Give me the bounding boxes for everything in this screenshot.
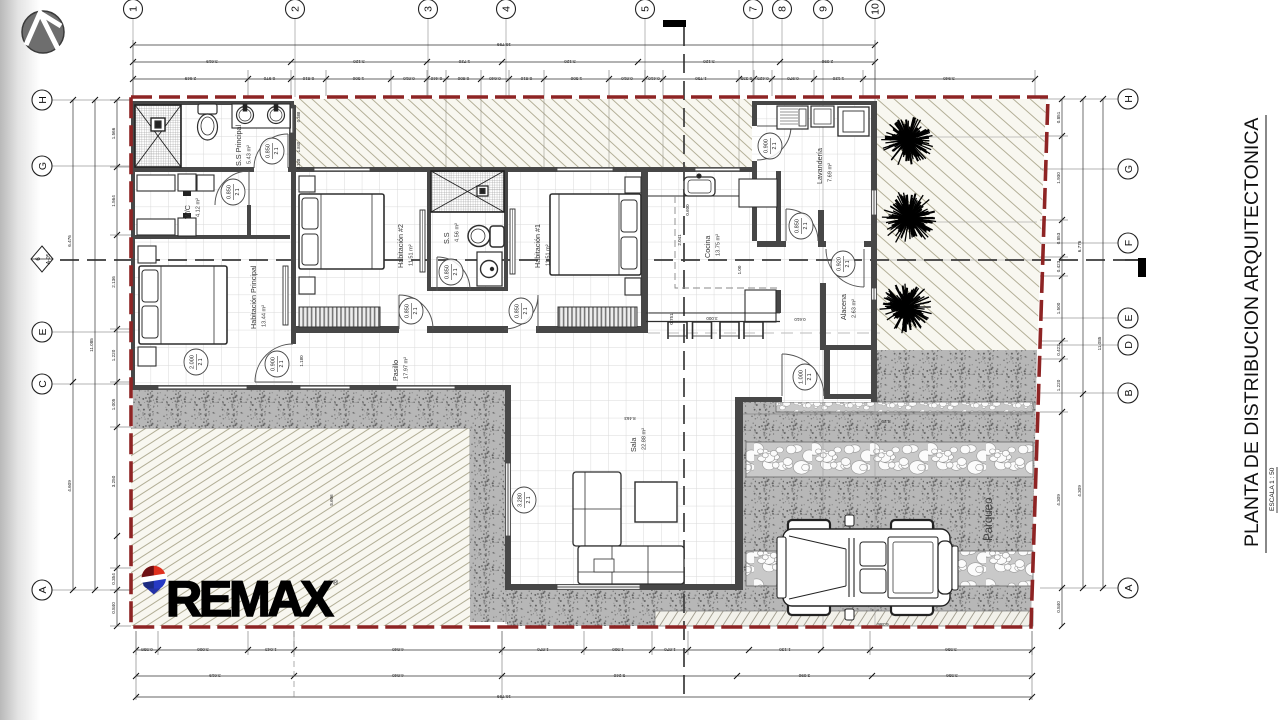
svg-text:2: 2 bbox=[290, 6, 302, 12]
svg-text:0.850: 0.850 bbox=[445, 265, 451, 279]
svg-text:2.136: 2.136 bbox=[111, 276, 116, 288]
svg-text:7: 7 bbox=[748, 6, 760, 12]
svg-text:3.000: 3.000 bbox=[197, 647, 209, 652]
svg-text:0.840: 0.840 bbox=[111, 602, 116, 614]
svg-text:0.853: 0.853 bbox=[1056, 232, 1061, 244]
svg-text:0.970: 0.970 bbox=[263, 76, 275, 81]
svg-text:1.500: 1.500 bbox=[352, 76, 364, 81]
svg-text:22.88 m²: 22.88 m² bbox=[642, 428, 648, 450]
svg-text:2.1: 2.1 bbox=[807, 373, 813, 380]
svg-text:0.751: 0.751 bbox=[669, 313, 674, 325]
svg-text:0.920: 0.920 bbox=[837, 257, 843, 271]
svg-text:0.851: 0.851 bbox=[1056, 111, 1061, 123]
svg-text:1: 1 bbox=[128, 6, 140, 12]
svg-text:1.870: 1.870 bbox=[664, 647, 676, 652]
svg-text:Habitación #2: Habitación #2 bbox=[396, 224, 405, 268]
svg-text:9: 9 bbox=[818, 6, 830, 12]
svg-text:13.44 m²: 13.44 m² bbox=[262, 305, 268, 327]
svg-text:0.423: 0.423 bbox=[1056, 344, 1061, 356]
svg-text:0.640: 0.640 bbox=[489, 76, 501, 81]
svg-text:3.280: 3.280 bbox=[518, 493, 524, 507]
svg-text:2.1: 2.1 bbox=[772, 142, 778, 149]
svg-text:1.005: 1.005 bbox=[111, 398, 116, 410]
svg-text:0.810: 0.810 bbox=[520, 76, 532, 81]
svg-text:4.309: 4.309 bbox=[1056, 494, 1061, 506]
svg-text:13.75 m²: 13.75 m² bbox=[716, 234, 722, 256]
svg-text:0.850: 0.850 bbox=[227, 185, 233, 199]
svg-text:1.840: 1.840 bbox=[296, 141, 301, 152]
svg-text:11.085: 11.085 bbox=[89, 338, 94, 352]
svg-text:0.410: 0.410 bbox=[648, 76, 660, 81]
svg-text:S.S: S.S bbox=[442, 232, 451, 244]
svg-text:17.97 m²: 17.97 m² bbox=[404, 357, 410, 379]
svg-text:5.240: 5.240 bbox=[613, 673, 625, 678]
svg-text:0.335: 0.335 bbox=[740, 76, 752, 81]
svg-text:10: 10 bbox=[870, 3, 882, 15]
svg-text:3.000: 3.000 bbox=[706, 316, 718, 321]
svg-text:1.180: 1.180 bbox=[299, 355, 304, 367]
svg-text:1.720: 1.720 bbox=[458, 59, 470, 64]
svg-text:3.619: 3.619 bbox=[206, 59, 218, 64]
svg-text:0.810: 0.810 bbox=[302, 76, 314, 81]
svg-text:1.566: 1.566 bbox=[111, 127, 116, 139]
svg-text:4.309: 4.309 bbox=[1077, 485, 1082, 497]
svg-text:0.840: 0.840 bbox=[1056, 601, 1061, 613]
svg-text:1.500: 1.500 bbox=[1056, 302, 1061, 314]
svg-text:C: C bbox=[37, 380, 49, 388]
svg-text:A: A bbox=[37, 586, 49, 593]
svg-text:0.610: 0.610 bbox=[794, 317, 806, 322]
svg-text:1.870: 1.870 bbox=[537, 647, 549, 652]
svg-text:1.500: 1.500 bbox=[612, 647, 624, 652]
svg-text:1.220: 1.220 bbox=[1056, 379, 1061, 391]
svg-text:1.000: 1.000 bbox=[799, 370, 805, 384]
svg-text:1.750: 1.750 bbox=[695, 76, 707, 81]
svg-text:2.1: 2.1 bbox=[235, 188, 241, 195]
svg-text:3.556: 3.556 bbox=[946, 673, 958, 678]
svg-text:2.1: 2.1 bbox=[279, 360, 285, 367]
svg-text:G: G bbox=[1123, 165, 1135, 173]
svg-text:Alacena: Alacena bbox=[839, 294, 848, 320]
svg-text:0.600: 0.600 bbox=[685, 204, 690, 216]
svg-text:3.250: 3.250 bbox=[111, 475, 116, 487]
svg-text:2.090: 2.090 bbox=[821, 59, 833, 64]
svg-text:11.51 m²: 11.51 m² bbox=[409, 244, 415, 266]
svg-text:3.940: 3.940 bbox=[943, 76, 955, 81]
svg-text:2.000: 2.000 bbox=[190, 355, 196, 369]
svg-text:Sala: Sala bbox=[629, 438, 638, 452]
svg-text:0.900: 0.900 bbox=[271, 357, 277, 371]
svg-text:Cocina: Cocina bbox=[703, 236, 712, 258]
svg-text:0.810: 0.810 bbox=[621, 76, 633, 81]
svg-text:REMAX: REMAX bbox=[166, 571, 333, 627]
svg-text:2.041: 2.041 bbox=[677, 234, 682, 246]
svg-text:G: G bbox=[37, 162, 49, 170]
svg-text:6.776: 6.776 bbox=[1077, 240, 1082, 252]
svg-text:8: 8 bbox=[777, 6, 789, 12]
svg-text:2.1: 2.1 bbox=[453, 268, 459, 275]
svg-text:1.220: 1.220 bbox=[111, 349, 116, 361]
svg-text:Habitación #1: Habitación #1 bbox=[533, 224, 542, 268]
svg-text:3.619: 3.619 bbox=[209, 673, 221, 678]
svg-text:4.56 m²: 4.56 m² bbox=[455, 223, 461, 242]
svg-text:1.930: 1.930 bbox=[1056, 172, 1061, 184]
svg-text:0.440: 0.440 bbox=[430, 76, 442, 81]
svg-text:16.799: 16.799 bbox=[497, 694, 511, 699]
svg-text:3.120: 3.120 bbox=[564, 59, 576, 64]
svg-text:B: B bbox=[1123, 389, 1135, 396]
svg-text:H: H bbox=[1123, 95, 1135, 103]
svg-text:0.388: 0.388 bbox=[296, 111, 301, 122]
svg-text:W/C: W/C bbox=[183, 205, 192, 219]
svg-text:E: E bbox=[37, 328, 49, 335]
svg-text:Parqueo: Parqueo bbox=[983, 498, 995, 541]
svg-text:3: 3 bbox=[423, 6, 435, 12]
svg-text:®: ® bbox=[333, 579, 339, 587]
svg-text:11.085: 11.085 bbox=[1097, 336, 1102, 350]
svg-text:0.328: 0.328 bbox=[296, 158, 301, 169]
svg-text:1.130: 1.130 bbox=[779, 647, 791, 652]
svg-text:1.500: 1.500 bbox=[570, 76, 582, 81]
svg-text:16.799: 16.799 bbox=[497, 42, 511, 47]
svg-text:Habitación Principal: Habitación Principal bbox=[249, 265, 258, 329]
svg-text:2.1: 2.1 bbox=[526, 496, 532, 503]
svg-text:0.850: 0.850 bbox=[515, 304, 521, 318]
svg-text:5.43 m²: 5.43 m² bbox=[247, 145, 253, 164]
svg-text:1.043: 1.043 bbox=[265, 647, 277, 652]
svg-text:4.840: 4.840 bbox=[392, 673, 404, 678]
svg-text:2.1: 2.1 bbox=[198, 358, 204, 365]
svg-text:A-05: A-05 bbox=[46, 254, 52, 265]
svg-text:4: 4 bbox=[501, 6, 513, 12]
svg-text:8.463: 8.463 bbox=[624, 416, 636, 421]
svg-text:4.609: 4.609 bbox=[67, 480, 72, 492]
svg-text:Pasillo: Pasillo bbox=[391, 360, 400, 381]
svg-text:H: H bbox=[37, 96, 49, 104]
svg-text:1.120: 1.120 bbox=[832, 76, 844, 81]
svg-text:4.840: 4.840 bbox=[392, 647, 404, 652]
svg-text:0.850: 0.850 bbox=[266, 144, 272, 158]
svg-text:D: D bbox=[1123, 341, 1135, 349]
svg-text:F: F bbox=[1123, 240, 1135, 246]
svg-text:2.1: 2.1 bbox=[274, 147, 280, 154]
svg-text:2.649: 2.649 bbox=[184, 76, 196, 81]
svg-text:A: A bbox=[1123, 584, 1135, 591]
svg-text:ESCALA 1 : 50: ESCALA 1 : 50 bbox=[1269, 467, 1276, 511]
svg-text:2.1: 2.1 bbox=[523, 307, 529, 314]
svg-text:3.120: 3.120 bbox=[703, 59, 715, 64]
svg-text:0.850: 0.850 bbox=[405, 304, 411, 318]
svg-text:3.120: 3.120 bbox=[353, 59, 365, 64]
svg-text:2.63 m²: 2.63 m² bbox=[852, 299, 858, 318]
svg-text:5: 5 bbox=[640, 6, 652, 12]
svg-text:0.850: 0.850 bbox=[795, 219, 801, 233]
svg-text:2.1: 2.1 bbox=[845, 260, 851, 267]
svg-text:7.69 m²: 7.69 m² bbox=[828, 163, 834, 182]
svg-text:0.354: 0.354 bbox=[111, 573, 116, 585]
svg-text:2.1: 2.1 bbox=[803, 222, 809, 229]
svg-text:1.00: 1.00 bbox=[737, 265, 742, 274]
svg-text:5.606: 5.606 bbox=[329, 494, 334, 506]
svg-text:Lavandería: Lavandería bbox=[815, 148, 824, 184]
svg-text:4.12 m²: 4.12 m² bbox=[196, 198, 202, 217]
svg-text:8.29: 8.29 bbox=[881, 418, 891, 424]
svg-text:PLANTA DE DISTRIBUCION ARQUITE: PLANTA DE DISTRIBUCION ARQUITECTONICA bbox=[1241, 118, 1263, 547]
svg-text:0.900: 0.900 bbox=[764, 139, 770, 153]
svg-text:11.51 m²: 11.51 m² bbox=[546, 244, 552, 266]
svg-text:0.423: 0.423 bbox=[1056, 260, 1061, 272]
svg-text:0.425: 0.425 bbox=[757, 76, 769, 81]
svg-text:6.476: 6.476 bbox=[67, 235, 72, 247]
svg-text:S.S Principal: S.S Principal bbox=[234, 124, 243, 166]
svg-text:0.558: 0.558 bbox=[141, 647, 153, 652]
svg-text:3.090: 3.090 bbox=[798, 673, 810, 678]
svg-text:0.810: 0.810 bbox=[403, 76, 415, 81]
svg-text:0.800: 0.800 bbox=[457, 76, 469, 81]
svg-text:2.1: 2.1 bbox=[413, 307, 419, 314]
svg-text:E: E bbox=[1123, 314, 1135, 321]
svg-text:0.970: 0.970 bbox=[787, 76, 799, 81]
svg-text:1.564: 1.564 bbox=[111, 195, 116, 207]
svg-text:3.556: 3.556 bbox=[945, 647, 957, 652]
